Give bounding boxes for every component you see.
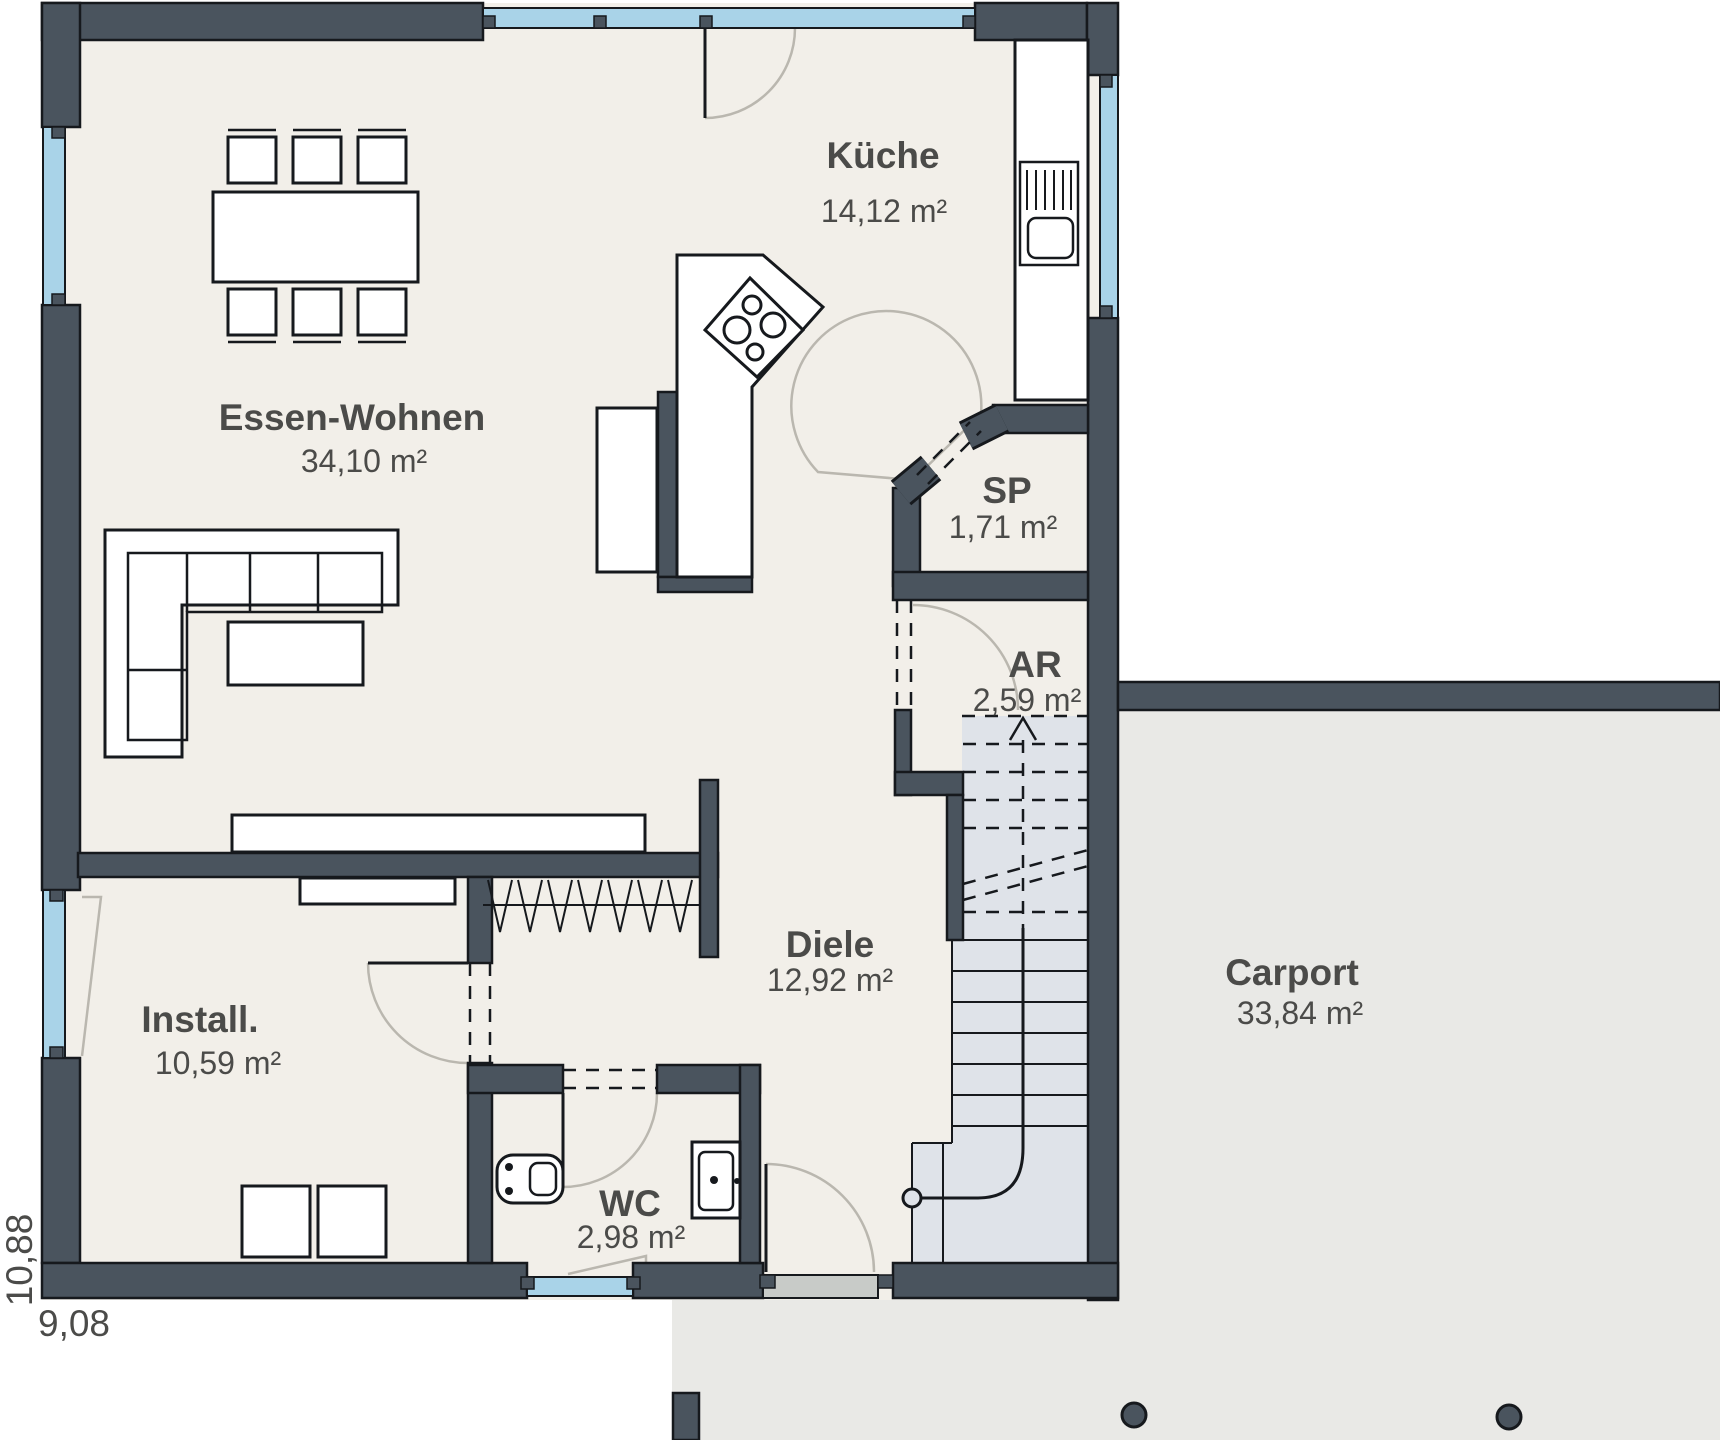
room-area: 10,59 m²: [155, 1045, 282, 1081]
wall-living-south: [78, 853, 718, 877]
room-name: Diele: [786, 924, 874, 965]
room-name: Install.: [141, 999, 258, 1040]
wall-wc-east: [740, 1065, 760, 1263]
dining-chair: [228, 289, 276, 335]
room-name: WC: [599, 1183, 661, 1224]
room-area: 33,84 m²: [1237, 995, 1364, 1031]
stool: [318, 1186, 386, 1257]
room-area: 1,71 m²: [949, 509, 1058, 545]
carport-post-icon: [1122, 1403, 1146, 1427]
dining-chair: [293, 137, 341, 183]
window-right: [1100, 75, 1118, 318]
wall-top-corner: [1087, 3, 1118, 75]
wall-sp-south: [893, 572, 1088, 600]
floor-plan: Küche 14,12 m² Essen-Wohnen 34,10 m² SP …: [0, 0, 1720, 1440]
wall-left-3: [42, 1058, 80, 1263]
room-name: SP: [982, 470, 1031, 511]
room-area: 12,92 m²: [767, 962, 894, 998]
room-area: 2,98 m²: [577, 1219, 686, 1255]
dimension-height: 10,88: [0, 1214, 40, 1307]
dining-chair: [228, 137, 276, 183]
island-back-panel: [658, 392, 677, 577]
room-name: Carport: [1225, 952, 1359, 993]
window-wc: [527, 1277, 633, 1296]
window-top: [483, 8, 975, 28]
wall-right: [1088, 318, 1118, 1300]
wall-top-left: [42, 3, 483, 40]
carport-post-icon: [1497, 1405, 1521, 1429]
dimension-width: 9,08: [38, 1303, 110, 1344]
dining-table: [213, 192, 418, 282]
wall-bottom-2: [633, 1263, 763, 1298]
room-label-carport: Carport 33,84 m²: [1225, 952, 1363, 1031]
wall-top-right: [975, 3, 1087, 40]
wall-stair-jog-v: [947, 795, 963, 940]
room-name: AR: [1008, 644, 1061, 685]
floor-plan-page: Küche 14,12 m² Essen-Wohnen 34,10 m² SP …: [0, 0, 1720, 1440]
room-area: 2,59 m²: [973, 682, 1082, 718]
room-area: 14,12 m²: [821, 193, 948, 229]
handrail-post-icon: [903, 1189, 921, 1207]
coffee-table: [228, 622, 363, 685]
dining-chair: [358, 289, 406, 335]
wall-bottom-3: [893, 1263, 1118, 1298]
room-area: 34,10 m²: [301, 443, 428, 479]
wall-stair-jog-h: [895, 772, 963, 795]
sideboard-living: [232, 815, 645, 852]
wall-install-east-upper: [468, 877, 492, 963]
window-left-upper: [43, 127, 65, 305]
sideboard-install: [300, 878, 455, 904]
carport-post-square: [673, 1393, 699, 1440]
washbasin-icon: [692, 1142, 740, 1218]
room-name: Essen-Wohnen: [219, 397, 486, 438]
room-name: Küche: [826, 135, 939, 176]
wall-left-2: [42, 305, 80, 890]
island-back-panel: [658, 577, 752, 592]
dining-chair: [293, 289, 341, 335]
stool: [242, 1186, 310, 1257]
wall-left-1: [42, 3, 80, 127]
wall-stub-kitchen: [700, 780, 718, 957]
dining-chair: [358, 137, 406, 183]
wall-sp-diagonal-upper: [966, 418, 1002, 436]
dining-set: [213, 130, 418, 342]
carport-wall: [1118, 682, 1720, 710]
window-left-lower: [43, 890, 65, 1058]
toilet-icon: [497, 1155, 563, 1203]
kitchen-side-counter: [597, 408, 657, 572]
kitchen-counter: [1015, 40, 1088, 400]
wall-bottom-1: [42, 1263, 527, 1298]
wall-wc-north-left: [468, 1065, 563, 1093]
entry-threshold: [763, 1275, 878, 1298]
